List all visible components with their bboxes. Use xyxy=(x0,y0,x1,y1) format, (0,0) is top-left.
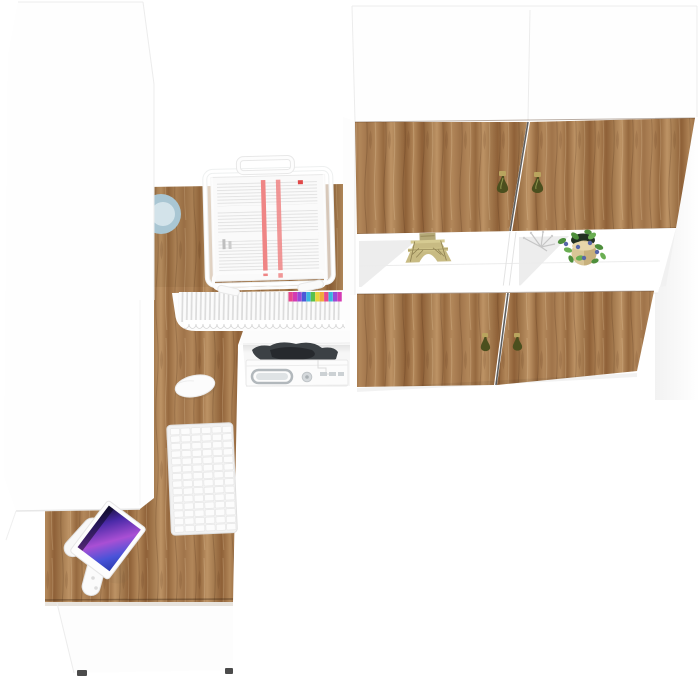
keyboard-key xyxy=(194,502,203,509)
keyboard-key xyxy=(182,458,191,465)
keyboard-key xyxy=(174,511,183,518)
keyboard-key xyxy=(206,524,215,531)
file-tab xyxy=(329,292,333,302)
keyboard-key xyxy=(212,427,221,434)
printer xyxy=(246,360,348,386)
keyboard-key xyxy=(171,443,180,450)
keyboard-key xyxy=(193,480,202,487)
file-tab xyxy=(302,292,306,302)
keyboard-key xyxy=(214,479,223,486)
printer-cubby xyxy=(243,342,350,387)
keyboard-key xyxy=(203,472,212,479)
keyboard-key xyxy=(205,502,214,509)
keyboard-key xyxy=(224,464,233,471)
keyboard-key xyxy=(202,434,211,441)
upper-door-left xyxy=(355,122,527,234)
file-tab xyxy=(297,292,301,302)
keyboard-key xyxy=(174,518,183,525)
keyboard-key xyxy=(191,427,200,434)
furniture-render xyxy=(0,0,700,679)
keyboard-key xyxy=(193,472,202,479)
keyboard-key xyxy=(215,486,224,493)
keyboard-key xyxy=(183,480,192,487)
file-tab xyxy=(320,292,324,302)
keyboard-key xyxy=(202,442,211,449)
keyboard-key xyxy=(182,465,191,472)
keyboard-key xyxy=(225,486,234,493)
document-tray xyxy=(204,156,334,297)
keyboard-key xyxy=(173,496,182,503)
keyboard-key xyxy=(227,523,236,530)
keyboard-key xyxy=(222,426,231,433)
keyboard-key xyxy=(216,524,225,531)
keyboard-key xyxy=(223,449,232,456)
keyboard-key xyxy=(224,456,233,463)
keyboard-key xyxy=(214,464,223,471)
keyboard-key xyxy=(183,488,192,495)
keyboard-key xyxy=(191,435,200,442)
lower-door-right xyxy=(497,291,654,385)
keyboard-key xyxy=(213,457,222,464)
keyboard-key xyxy=(184,503,193,510)
keyboard-key xyxy=(192,450,201,457)
keyboard-key xyxy=(194,495,203,502)
keyboard-key xyxy=(195,525,204,532)
keyboard-key xyxy=(204,487,213,494)
file-tab xyxy=(311,292,315,302)
keyboard-key xyxy=(181,443,190,450)
file-tab xyxy=(293,292,297,302)
file-tab xyxy=(289,292,293,302)
open-shelf xyxy=(357,228,676,296)
keyboard-key xyxy=(172,473,181,480)
keyboard-key xyxy=(183,473,192,480)
keyboard-key xyxy=(202,449,211,456)
wall-unit-side-panel xyxy=(343,117,355,295)
keyboard-key xyxy=(224,471,233,478)
keyboard-key xyxy=(184,495,193,502)
keyboard-key xyxy=(203,457,212,464)
keyboard-key xyxy=(172,458,181,465)
file-tab xyxy=(324,292,328,302)
keyboard-key xyxy=(192,442,201,449)
keyboard-key xyxy=(175,526,184,533)
keyboard-key xyxy=(184,510,193,517)
file-tab xyxy=(306,292,310,302)
keyboard-key xyxy=(215,509,224,516)
keyboard-key xyxy=(204,494,213,501)
file-tab xyxy=(315,292,319,302)
keyboard-key xyxy=(195,517,204,524)
keyboard-key xyxy=(213,449,222,456)
keyboard-key xyxy=(172,466,181,473)
file-tab xyxy=(337,292,341,302)
keyboard-key xyxy=(182,450,191,457)
keyboard-key xyxy=(223,434,232,441)
keyboard-key xyxy=(201,427,210,434)
keyboard-key xyxy=(185,525,194,532)
keyboard-key xyxy=(225,494,234,501)
keyboard-key xyxy=(205,509,214,516)
keyboard-key xyxy=(193,465,202,472)
keyboard-key xyxy=(204,479,213,486)
wall-unit xyxy=(343,6,697,392)
file-tab xyxy=(333,292,337,302)
keyboard-key xyxy=(173,481,182,488)
keyboard-key xyxy=(226,516,235,523)
keyboard-key xyxy=(213,442,222,449)
file-folders xyxy=(178,292,345,329)
pedestal-foot xyxy=(77,670,87,676)
keyboard-key xyxy=(170,428,179,435)
keyboard-key xyxy=(226,508,235,515)
keyboard-key xyxy=(226,501,235,508)
keyboard-key xyxy=(215,501,224,508)
keyboard-key xyxy=(205,517,214,524)
keyboard-key xyxy=(173,488,182,495)
keyboard-key xyxy=(216,516,225,523)
keyboard-key xyxy=(171,451,180,458)
pedestal xyxy=(45,602,233,676)
keyboard-key xyxy=(203,464,212,471)
keyboard-key xyxy=(225,479,234,486)
keyboard-key xyxy=(185,518,194,525)
scene-render xyxy=(0,0,700,679)
keyboard xyxy=(167,423,238,536)
keyboard-key xyxy=(174,503,183,510)
keyboard-key xyxy=(181,435,190,442)
keyboard-key xyxy=(181,428,190,435)
tall-cabinet xyxy=(4,2,154,540)
keyboard-key xyxy=(223,441,232,448)
keyboard-key xyxy=(192,457,201,464)
keyboard-key xyxy=(195,510,204,517)
keyboard-key xyxy=(212,434,221,441)
keyboard-key xyxy=(215,494,224,501)
pedestal-foot xyxy=(225,668,233,674)
wall-unit-top-cabinets xyxy=(352,6,697,121)
keyboard-key xyxy=(194,487,203,494)
keyboard-key xyxy=(214,471,223,478)
keyboard-key xyxy=(171,436,180,443)
